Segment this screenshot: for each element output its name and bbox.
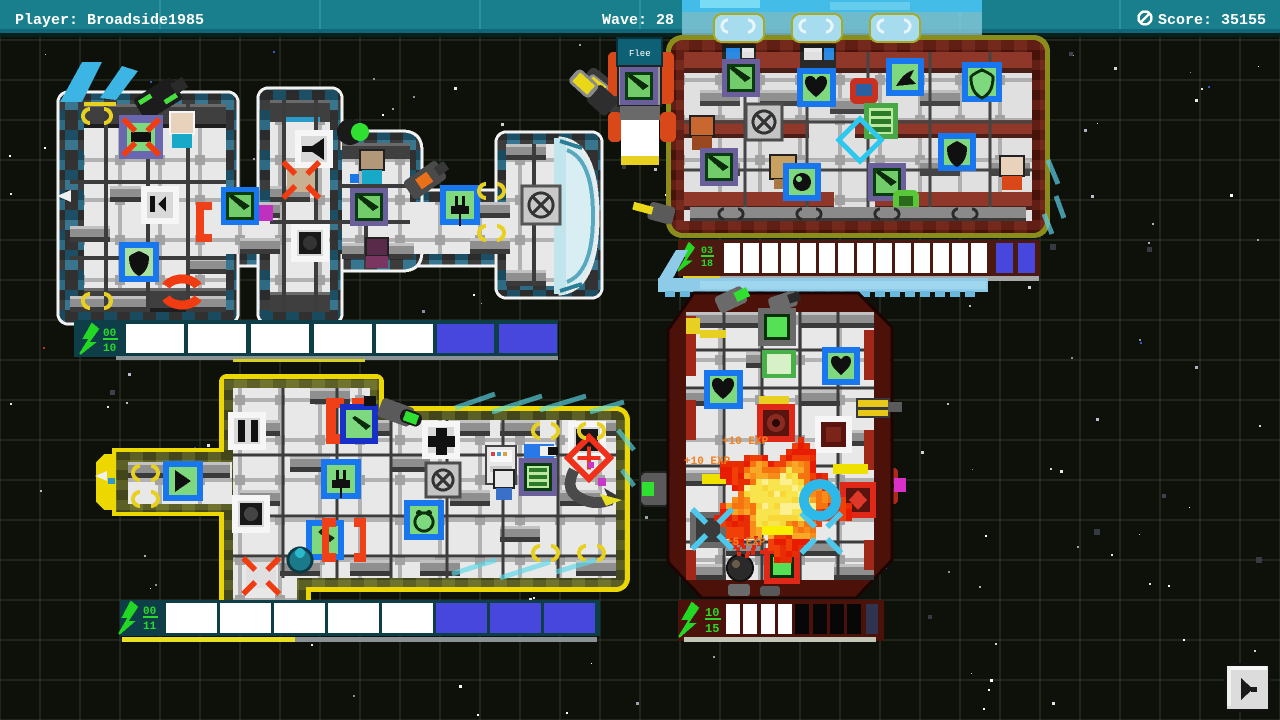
svg-text:+10 EXP: +10 EXP xyxy=(684,456,731,468)
svg-text:10: 10 xyxy=(103,343,116,355)
svg-text:Wave: 28: Wave: 28 xyxy=(602,12,674,29)
svg-text:11: 11 xyxy=(143,621,157,633)
svg-text:18: 18 xyxy=(701,259,713,270)
svg-text:10: 10 xyxy=(705,606,719,620)
svg-text:+10 EXP: +10 EXP xyxy=(722,436,769,448)
svg-text:Player: Broadside1985: Player: Broadside1985 xyxy=(15,12,204,29)
svg-text:Score: 35155: Score: 35155 xyxy=(1158,12,1266,29)
svg-text:15: 15 xyxy=(705,622,719,636)
svg-text:Flee: Flee xyxy=(629,49,651,59)
